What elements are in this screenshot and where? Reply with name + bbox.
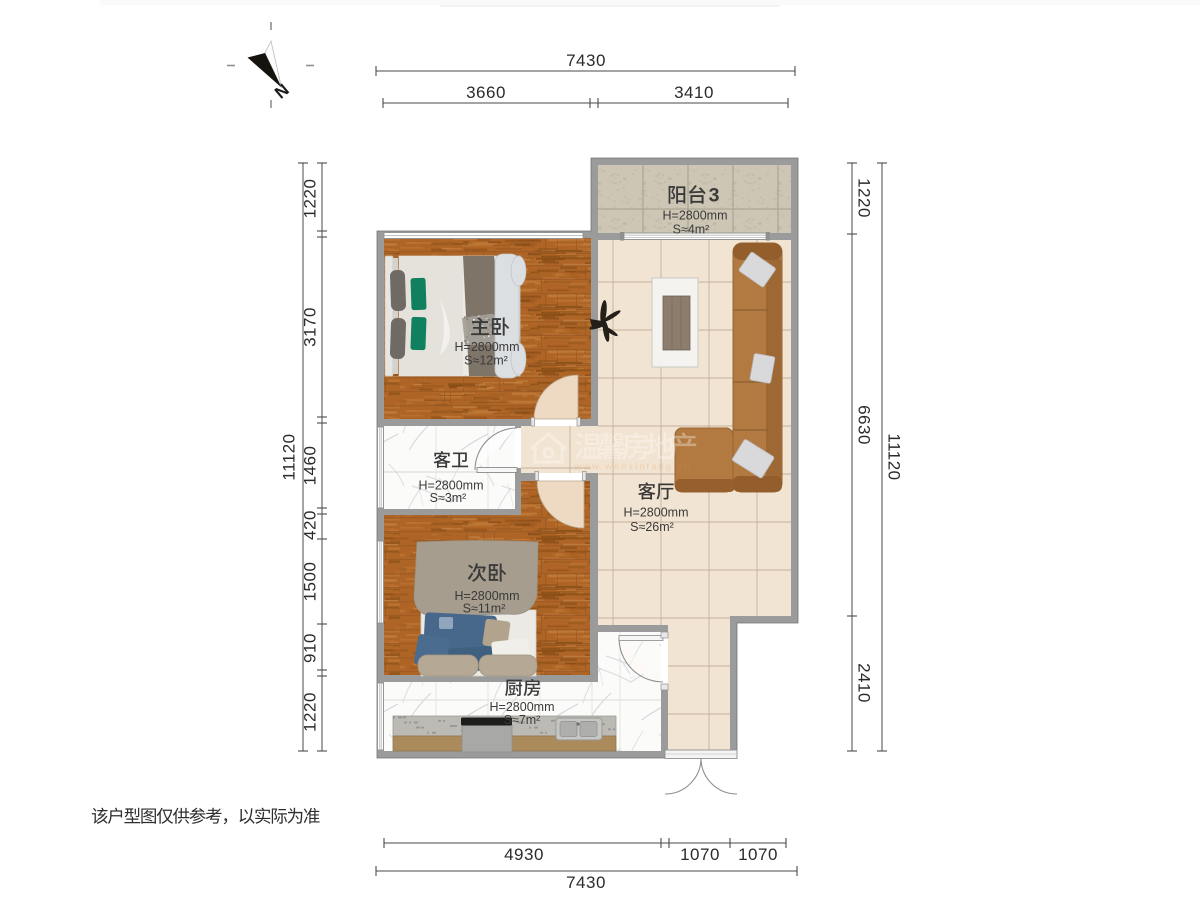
svg-text:1220: 1220 <box>855 178 874 218</box>
svg-text:3: 3 <box>709 185 720 207</box>
svg-text:1220: 1220 <box>301 179 320 219</box>
svg-text:S≈7m²: S≈7m² <box>504 713 541 727</box>
svg-text:H=2800mm: H=2800mm <box>490 700 555 714</box>
svg-text:7430: 7430 <box>566 51 606 70</box>
svg-text:4930: 4930 <box>504 845 544 864</box>
svg-text:H=2800mm: H=2800mm <box>624 506 689 520</box>
svg-text:www.wenxinfang.cn: www.wenxinfang.cn <box>573 462 691 473</box>
svg-text:910: 910 <box>301 633 320 663</box>
svg-text:S≈26m²: S≈26m² <box>630 520 674 534</box>
svg-text:7430: 7430 <box>566 873 606 892</box>
svg-text:11120: 11120 <box>885 433 904 480</box>
svg-text:3660: 3660 <box>466 83 506 102</box>
svg-text:N: N <box>271 80 293 102</box>
svg-text:3170: 3170 <box>301 307 320 347</box>
svg-text:S≈12m²: S≈12m² <box>464 354 508 368</box>
svg-text:2410: 2410 <box>855 663 874 703</box>
svg-text:H=2800mm: H=2800mm <box>455 340 520 354</box>
svg-text:1500: 1500 <box>301 562 320 602</box>
svg-text:420: 420 <box>301 510 320 540</box>
svg-text:3410: 3410 <box>674 83 714 102</box>
svg-text:S≈4m²: S≈4m² <box>673 223 710 237</box>
svg-text:1070: 1070 <box>738 845 778 864</box>
svg-text:1460: 1460 <box>301 446 320 486</box>
svg-text:S≈3m²: S≈3m² <box>430 491 467 505</box>
svg-text:1220: 1220 <box>301 692 320 732</box>
svg-text:S≈11m²: S≈11m² <box>463 602 506 616</box>
svg-text:1070: 1070 <box>680 845 720 864</box>
svg-text:11120: 11120 <box>280 433 299 480</box>
svg-text:6630: 6630 <box>855 405 874 445</box>
svg-text:H=2800mm: H=2800mm <box>663 209 728 223</box>
